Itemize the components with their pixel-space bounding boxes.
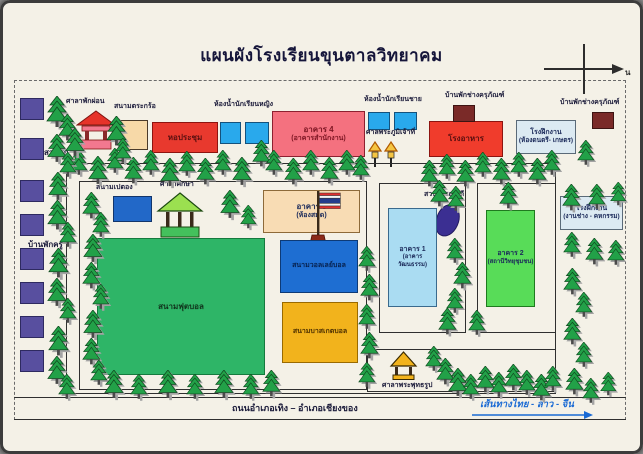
boys-restroom-1: [368, 112, 390, 130]
building-4-desc: (อาคารสำนักงาน): [291, 135, 346, 144]
girls-restroom-2: [245, 122, 269, 144]
girls-restroom-label: ห้องน้ำนักเรียนหญิง: [214, 101, 273, 109]
basketball-label: สนามบาสเกตบอล: [293, 328, 347, 337]
building-4-name: อาคาร 4: [303, 125, 333, 135]
football-field: สนามฟุตบอล: [97, 238, 265, 375]
housing-square: [20, 138, 44, 160]
basketball-court: สนามบาสเกตบอล: [282, 302, 358, 363]
spirit-house-label: ศาลพระภูมิเจ้าที่: [366, 129, 415, 137]
workshop-2-name: โรงฝึกงาน: [576, 205, 607, 214]
cafeteria-label: โรงอาหาร: [448, 134, 484, 144]
housing-square: [20, 282, 44, 304]
equip-house-1: [453, 105, 475, 122]
buddha-pavilion-label: ศาลาพระพุทธรูป: [382, 382, 432, 390]
housing-square: [20, 350, 44, 372]
thai-flag-icon: [308, 191, 342, 245]
boys-restroom-2: [394, 112, 417, 130]
housing-square: [20, 316, 44, 338]
building-2-desc: (สถานีวิทยุชุมชน): [488, 259, 534, 267]
petanque-court: [113, 196, 152, 222]
rest-pavilion-icon: [76, 110, 116, 150]
compass-icon: น: [540, 42, 636, 96]
football-field-label: สนามฟุตบอล: [158, 302, 204, 312]
volleyball-court: สนามวอลเลย์บอล: [280, 240, 358, 293]
literature-garden-label: สวนวรรณคดี: [424, 191, 464, 199]
cafeteria-building: โรงอาหาร: [429, 121, 503, 157]
petanque-label: สนามเปตอง: [96, 184, 133, 192]
housing-square: [20, 248, 44, 270]
route-arrow-icon: [472, 410, 594, 420]
study-pavilion-icon: [156, 191, 204, 239]
volleyball-label: สนามวอลเลย์บอล: [292, 262, 346, 271]
takraw-court-label: สนามตระกร้อ: [114, 103, 156, 111]
road-name-label: ถนนอำเภอเทิง – อำเภอเชียงของ: [232, 403, 358, 413]
auditorium-label: หอประชุม: [168, 133, 202, 143]
equip-house-1-label: บ้านพักช่างครุภัณฑ์: [445, 92, 504, 100]
teak-garden-label: สวนสัก: [44, 148, 69, 157]
building-1-desc: (อาคารวัฒนธรรม): [389, 254, 436, 269]
equip-house-2-label: บ้านพักช่างครุภัณฑ์: [560, 99, 619, 107]
workshop-1-desc: (ห้องดนตรี- เกษตร): [519, 137, 573, 145]
building-2-name: อาคาร 2: [497, 250, 523, 259]
boys-restroom-label: ห้องน้ำนักเรียนชาย: [364, 96, 422, 104]
workshop-2-desc: (งานช่าง - คหกรรม): [563, 213, 619, 221]
equip-house-2: [592, 112, 614, 129]
housing-square: [20, 180, 44, 202]
road-top-line: [14, 397, 626, 398]
workshop-1: โรงฝึกงาน (ห้องดนตรี- เกษตร): [516, 120, 576, 154]
building-2: อาคาร 2 (สถานีวิทยุชุมชน): [486, 210, 535, 307]
housing-square: [20, 214, 44, 236]
school-map-page: แผนผังโรงเรียนขุนตาลวิทยาคม น สวนสัก บ้า…: [0, 0, 643, 454]
building-1: อาคาร 1 (อาคารวัฒนธรรม): [388, 208, 437, 307]
compass-north-label: น: [625, 68, 630, 77]
rest-pavilion-label: ศาลาพักผ่อน: [66, 98, 105, 106]
housing-square: [20, 98, 44, 120]
takraw-court: [119, 120, 148, 150]
girls-restroom-1: [220, 122, 241, 144]
buddha-pavilion-icon: [389, 351, 418, 383]
building-4: อาคาร 4 (อาคารสำนักงาน): [272, 111, 365, 157]
workshop-2: โรงฝึกงาน (งานช่าง - คหกรรม): [560, 196, 623, 230]
workshop-1-name: โรงฝึกงาน: [530, 129, 561, 138]
auditorium-building: หอประชุม: [152, 122, 218, 153]
teacher-housing-label: บ้านพักครู: [28, 240, 63, 249]
study-pavilion-label: ศาลาศึกษา: [160, 181, 194, 189]
